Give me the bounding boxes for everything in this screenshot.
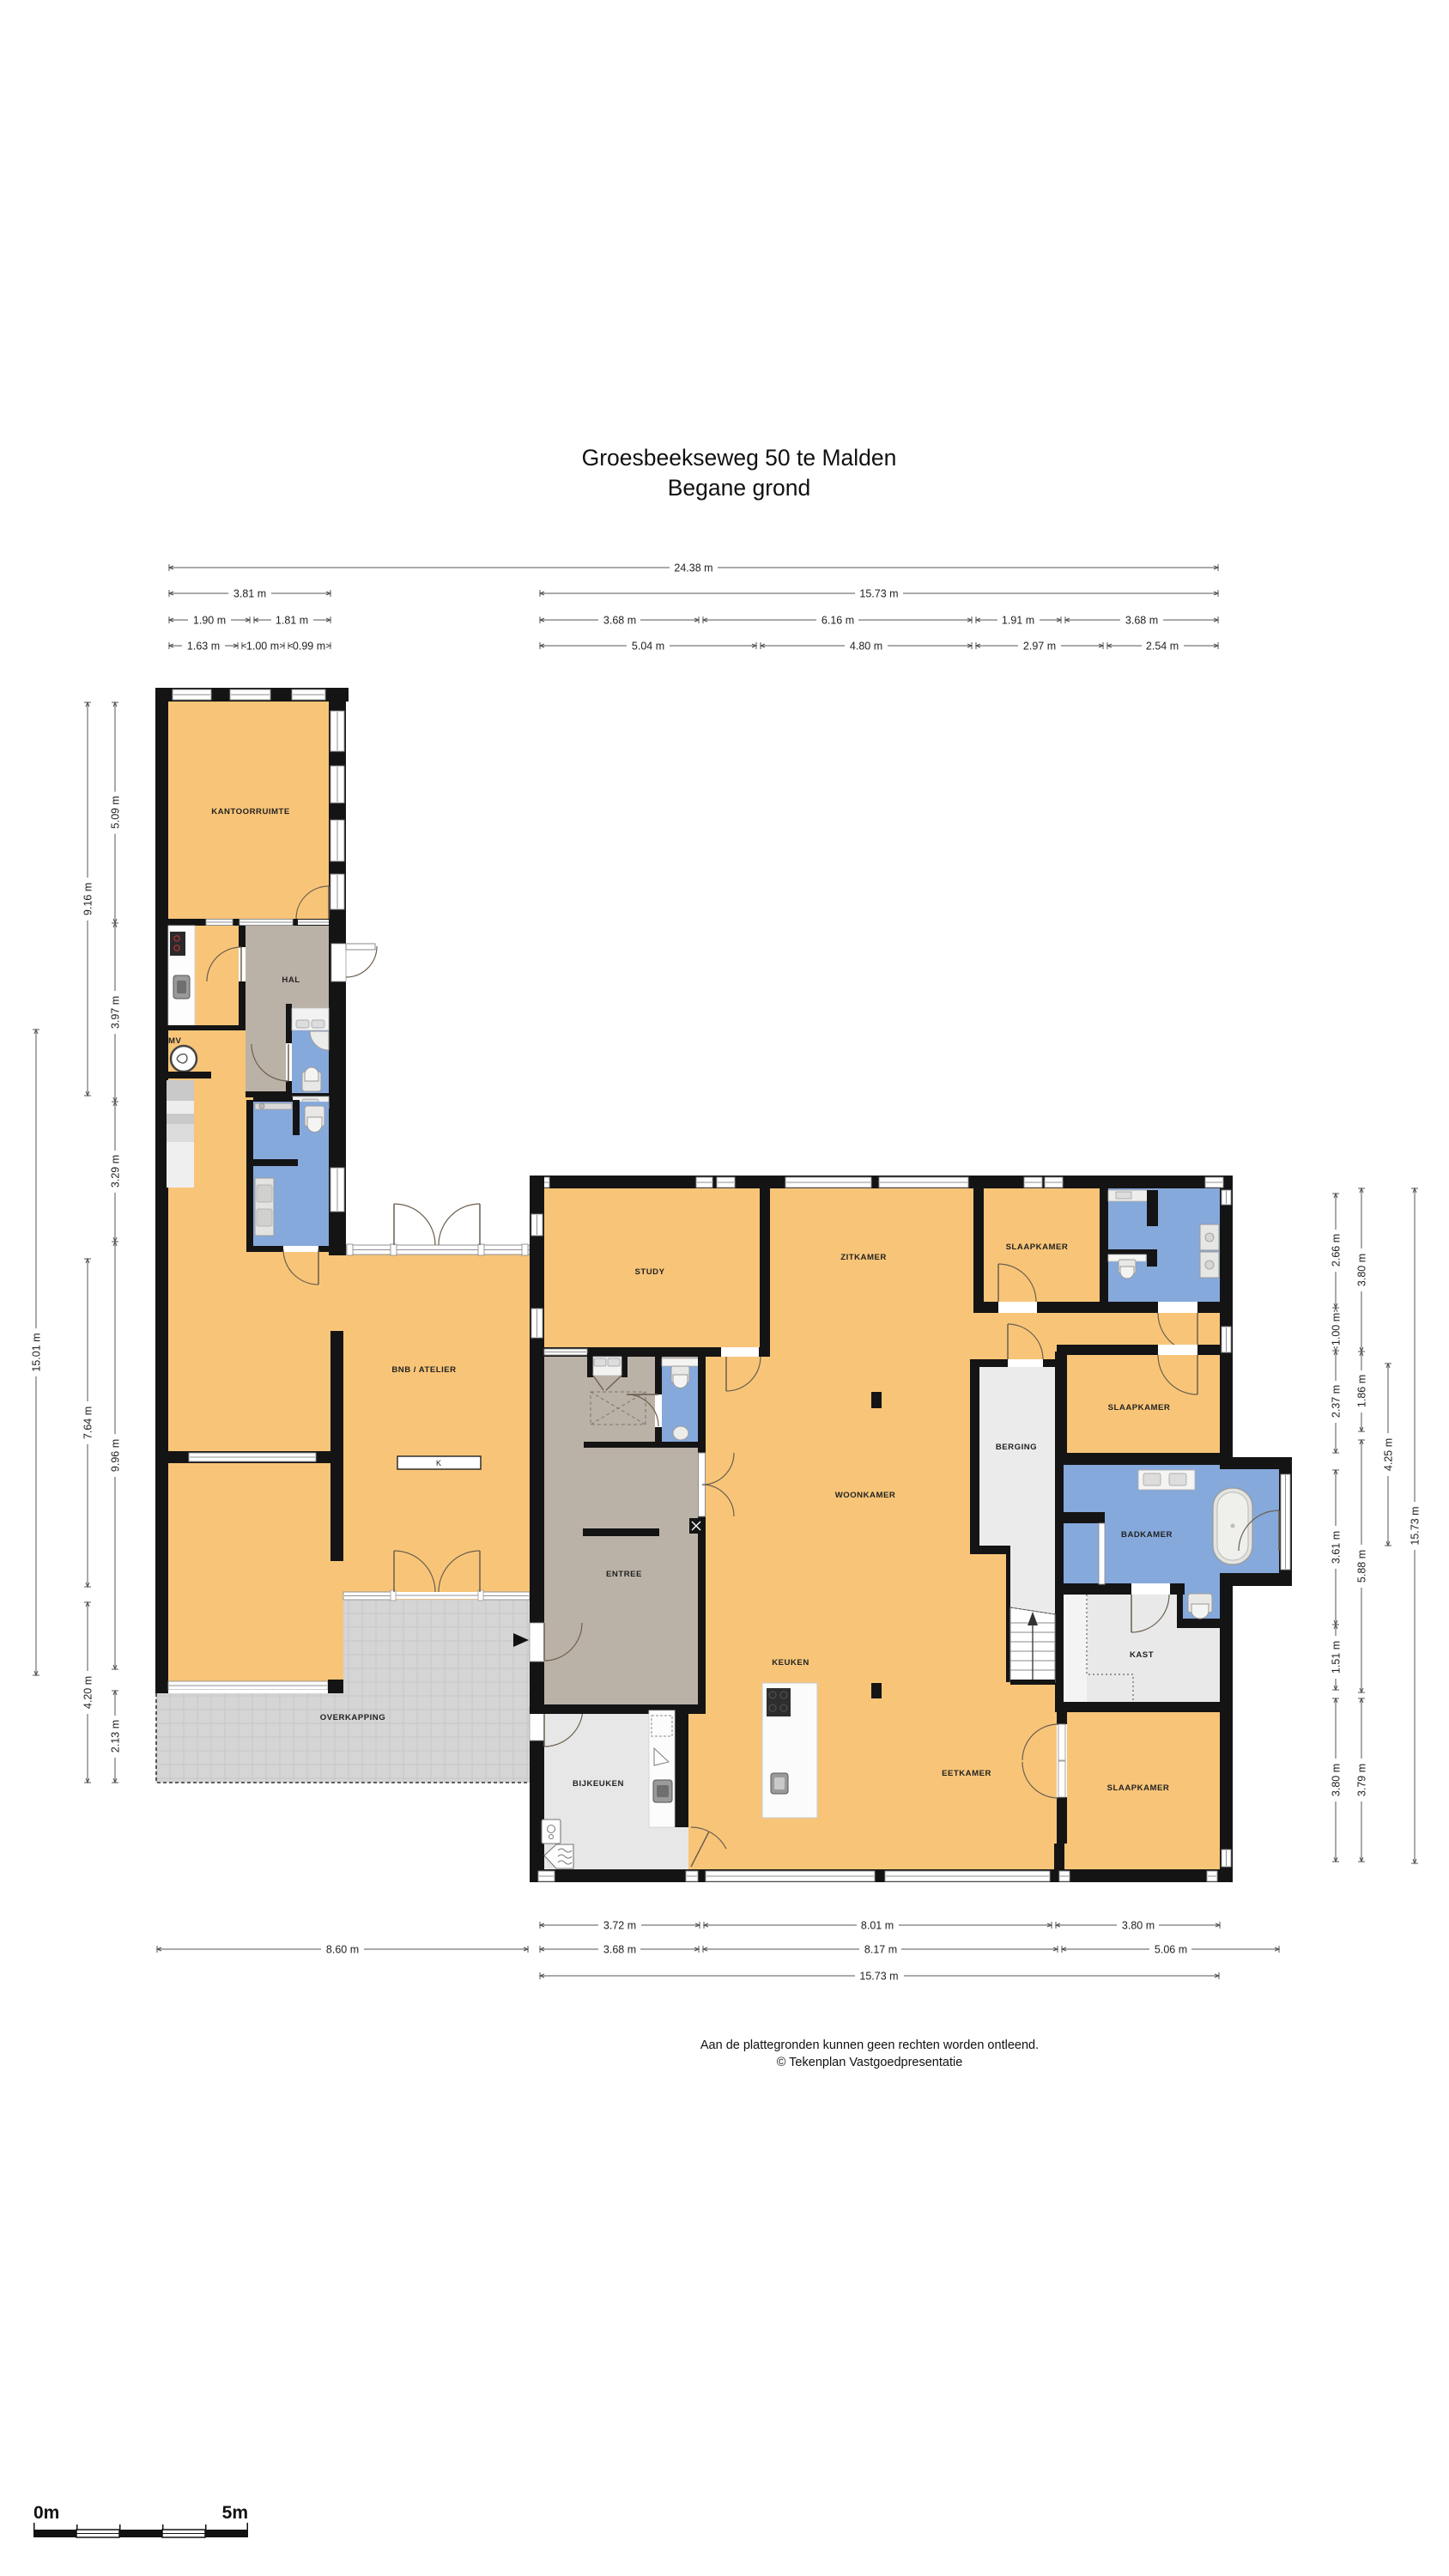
svg-text:3.68 m: 3.68 m (1125, 615, 1158, 627)
svg-text:ZITKAMER: ZITKAMER (840, 1253, 887, 1262)
svg-text:KAST: KAST (1130, 1650, 1154, 1660)
svg-text:1.81 m: 1.81 m (276, 615, 308, 627)
svg-text:9.96 m: 9.96 m (110, 1439, 122, 1472)
svg-text:BIJKEUKEN: BIJKEUKEN (573, 1779, 624, 1789)
svg-text:WOONKAMER: WOONKAMER (835, 1491, 896, 1500)
svg-text:OVERKAPPING: OVERKAPPING (320, 1713, 385, 1722)
svg-text:SLAAPKAMER: SLAAPKAMER (1108, 1403, 1171, 1413)
svg-text:HAL: HAL (282, 975, 300, 985)
svg-text:5m: 5m (222, 2503, 248, 2523)
svg-text:3.61 m: 3.61 m (1331, 1531, 1343, 1564)
svg-text:3.68 m: 3.68 m (603, 1944, 636, 1956)
svg-text:SLAAPKAMER: SLAAPKAMER (1006, 1242, 1069, 1252)
svg-text:1.00 m: 1.00 m (246, 641, 279, 653)
svg-text:0m: 0m (33, 2503, 59, 2523)
svg-text:3.68 m: 3.68 m (603, 615, 636, 627)
svg-text:3.80 m: 3.80 m (1122, 1920, 1155, 1932)
svg-text:Groesbeekseweg 50 te Malden: Groesbeekseweg 50 te Malden (582, 445, 897, 471)
svg-text:1.00 m: 1.00 m (1331, 1313, 1343, 1346)
svg-text:4.20 m: 4.20 m (82, 1676, 94, 1709)
svg-text:3.97 m: 3.97 m (110, 996, 122, 1029)
svg-text:STUDY: STUDY (634, 1267, 664, 1277)
svg-text:15.01 m: 15.01 m (31, 1333, 43, 1371)
svg-text:4.80 m: 4.80 m (850, 641, 882, 653)
svg-text:0.99 m: 0.99 m (293, 641, 325, 653)
svg-text:5.06 m: 5.06 m (1155, 1944, 1187, 1956)
svg-text:2.54 m: 2.54 m (1146, 641, 1179, 653)
svg-text:KEUKEN: KEUKEN (772, 1658, 809, 1668)
svg-text:BERGING: BERGING (996, 1443, 1037, 1452)
svg-text:8.17 m: 8.17 m (864, 1944, 897, 1956)
svg-text:15.73 m: 15.73 m (1410, 1506, 1422, 1545)
svg-text:3.80 m: 3.80 m (1356, 1254, 1368, 1286)
svg-text:2.97 m: 2.97 m (1023, 641, 1056, 653)
svg-text:6.16 m: 6.16 m (822, 615, 854, 627)
svg-text:Begane grond: Begane grond (668, 475, 811, 501)
svg-text:1.90 m: 1.90 m (193, 615, 226, 627)
svg-text:4.25 m: 4.25 m (1383, 1438, 1395, 1471)
svg-text:9.16 m: 9.16 m (82, 883, 94, 915)
svg-text:24.38 m: 24.38 m (674, 562, 712, 574)
svg-text:5.04 m: 5.04 m (632, 641, 664, 653)
svg-text:Aan de plattegronden kunnen ge: Aan de plattegronden kunnen geen rechten… (700, 2038, 1039, 2052)
svg-text:3.29 m: 3.29 m (110, 1155, 122, 1188)
svg-text:1.86 m: 1.86 m (1356, 1375, 1368, 1407)
svg-text:2.66 m: 2.66 m (1331, 1234, 1343, 1267)
svg-text:5.09 m: 5.09 m (110, 796, 122, 829)
svg-text:1.51 m: 1.51 m (1331, 1641, 1343, 1674)
svg-text:K: K (436, 1459, 441, 1467)
svg-text:2.13 m: 2.13 m (110, 1720, 122, 1753)
svg-text:3.79 m: 3.79 m (1356, 1764, 1368, 1796)
svg-text:SLAAPKAMER: SLAAPKAMER (1107, 1783, 1170, 1793)
svg-text:1.63 m: 1.63 m (187, 641, 220, 653)
svg-text:MV: MV (168, 1036, 181, 1046)
svg-text:© Tekenplan Vastgoedpresentati: © Tekenplan Vastgoedpresentatie (777, 2056, 963, 2069)
svg-text:15.73 m: 15.73 m (859, 588, 898, 600)
svg-text:7.64 m: 7.64 m (82, 1406, 94, 1439)
svg-text:2.37 m: 2.37 m (1331, 1385, 1343, 1418)
svg-text:3.80 m: 3.80 m (1331, 1764, 1343, 1796)
svg-text:3.72 m: 3.72 m (603, 1920, 636, 1932)
svg-text:15.73 m: 15.73 m (859, 1971, 898, 1983)
svg-text:5.88 m: 5.88 m (1356, 1550, 1368, 1583)
svg-text:BADKAMER: BADKAMER (1121, 1530, 1173, 1540)
svg-text:3.81 m: 3.81 m (233, 588, 266, 600)
svg-text:1.91 m: 1.91 m (1002, 615, 1034, 627)
svg-text:KANTOORRUIMTE: KANTOORRUIMTE (211, 807, 290, 817)
svg-text:BNB / ATELIER: BNB / ATELIER (391, 1365, 456, 1375)
svg-text:8.60 m: 8.60 m (326, 1944, 359, 1956)
svg-text:ENTREE: ENTREE (606, 1570, 642, 1579)
svg-text:8.01 m: 8.01 m (861, 1920, 894, 1932)
svg-text:EETKAMER: EETKAMER (942, 1769, 991, 1778)
